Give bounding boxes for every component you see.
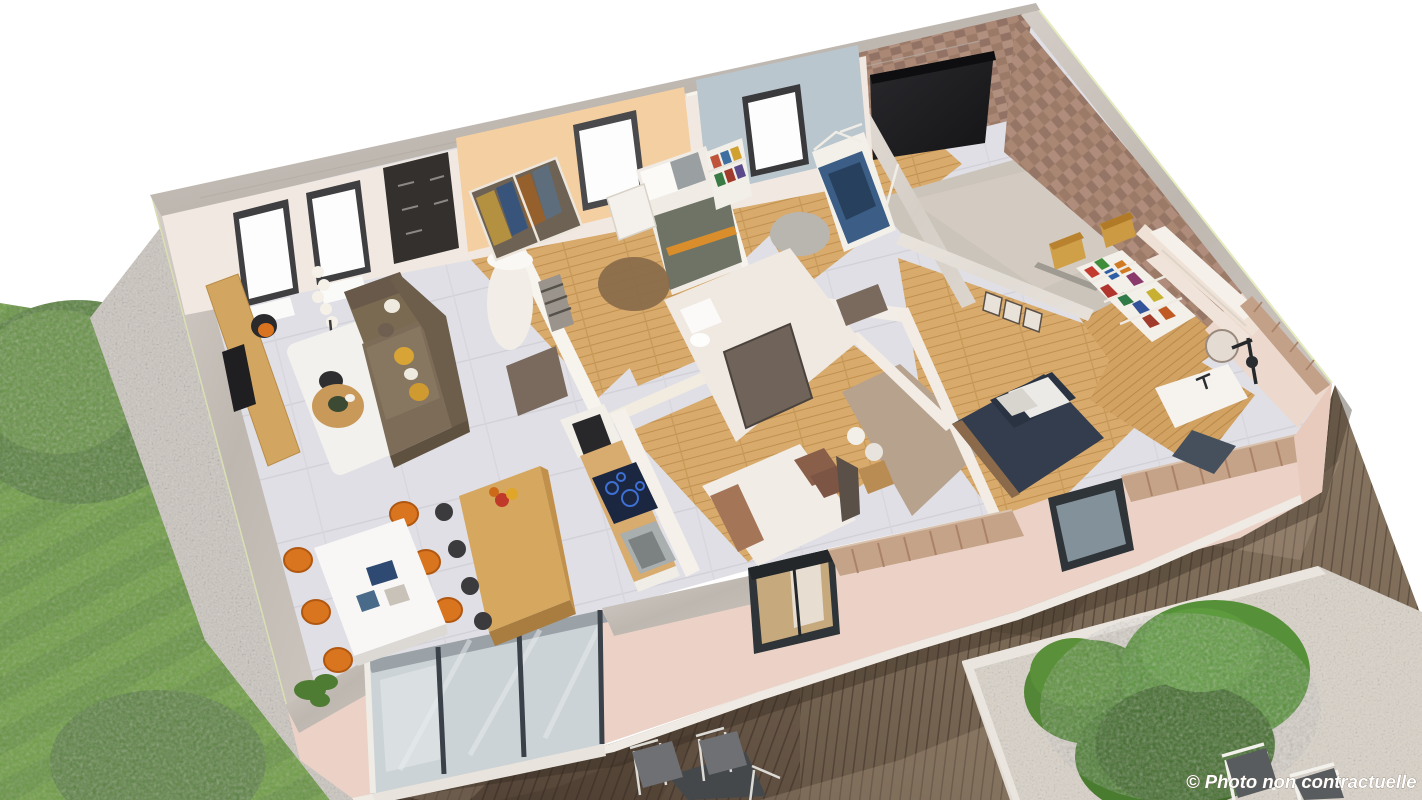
svg-text:© Photo non contractuelle: © Photo non contractuelle [1186, 771, 1417, 792]
